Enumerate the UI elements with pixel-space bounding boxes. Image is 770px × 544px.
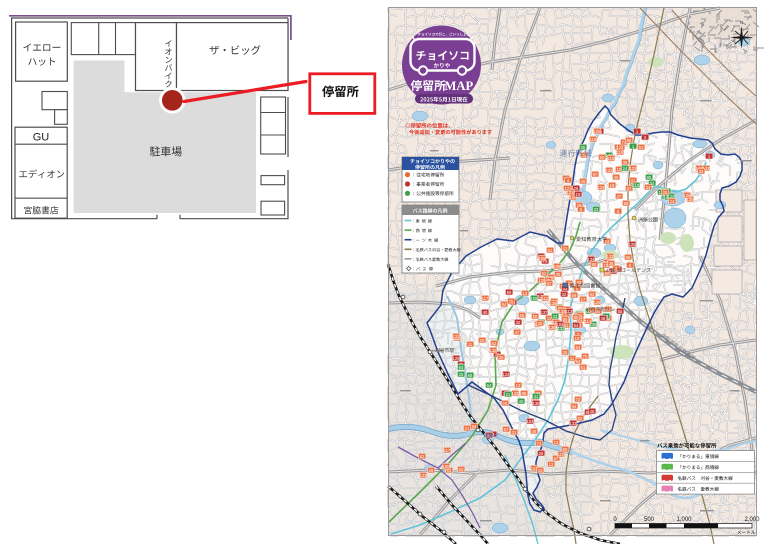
svg-text:40: 40 xyxy=(614,175,619,180)
svg-text:1,000: 1,000 xyxy=(676,517,692,523)
svg-text:47: 47 xyxy=(515,330,520,335)
svg-text:124: 124 xyxy=(503,372,511,377)
svg-text:136: 136 xyxy=(550,301,558,306)
svg-text:86: 86 xyxy=(592,262,597,267)
svg-text:40: 40 xyxy=(483,310,488,315)
svg-text:MAP: MAP xyxy=(445,79,474,93)
svg-text:27: 27 xyxy=(617,194,622,199)
svg-text:94: 94 xyxy=(502,302,507,307)
svg-text:69: 69 xyxy=(572,293,577,298)
svg-text:137: 137 xyxy=(541,310,549,315)
svg-text:23: 23 xyxy=(553,314,558,319)
svg-text:114: 114 xyxy=(585,319,592,324)
svg-text:19: 19 xyxy=(576,192,581,197)
svg-text:82: 82 xyxy=(590,292,595,297)
svg-text:64: 64 xyxy=(576,359,581,364)
svg-text:109: 109 xyxy=(539,256,547,261)
svg-text:63: 63 xyxy=(459,467,464,472)
svg-text:86: 86 xyxy=(627,138,632,143)
svg-text:21: 21 xyxy=(465,426,470,431)
svg-text:136: 136 xyxy=(549,325,557,330)
svg-text:84: 84 xyxy=(472,424,477,429)
svg-text:60: 60 xyxy=(600,155,605,160)
svg-text:99: 99 xyxy=(624,201,629,206)
svg-text:132: 132 xyxy=(512,391,520,396)
svg-text:28: 28 xyxy=(532,429,537,434)
svg-text:67: 67 xyxy=(547,281,552,286)
svg-text:80: 80 xyxy=(574,315,579,320)
svg-text:62: 62 xyxy=(492,341,497,346)
svg-text:25: 25 xyxy=(459,372,464,377)
svg-text:117: 117 xyxy=(444,448,451,453)
svg-text:35: 35 xyxy=(623,160,628,165)
svg-text:82: 82 xyxy=(420,454,425,459)
svg-text:24: 24 xyxy=(670,199,675,204)
svg-text:132: 132 xyxy=(607,254,615,259)
svg-text:32: 32 xyxy=(516,320,521,325)
svg-text:124: 124 xyxy=(598,185,606,190)
svg-text:106: 106 xyxy=(531,296,539,301)
svg-text:35: 35 xyxy=(538,321,543,326)
svg-text:20: 20 xyxy=(480,338,485,343)
svg-text:13: 13 xyxy=(554,440,559,445)
svg-text:46: 46 xyxy=(590,409,595,414)
svg-text:125: 125 xyxy=(594,300,602,305)
svg-text:64: 64 xyxy=(487,383,492,388)
svg-text:20: 20 xyxy=(563,350,568,355)
svg-text:40: 40 xyxy=(519,399,524,404)
svg-text:110: 110 xyxy=(558,452,565,457)
svg-text:93: 93 xyxy=(459,365,464,370)
svg-text:11: 11 xyxy=(547,316,552,321)
svg-text:70: 70 xyxy=(583,354,588,359)
svg-text:94: 94 xyxy=(572,404,577,409)
svg-text:116: 116 xyxy=(633,183,640,188)
svg-text:67: 67 xyxy=(627,186,632,191)
svg-text:26: 26 xyxy=(539,451,544,456)
svg-text:25: 25 xyxy=(663,190,668,195)
svg-text:20: 20 xyxy=(503,401,508,406)
svg-text:36: 36 xyxy=(556,272,561,277)
svg-text:123: 123 xyxy=(420,473,428,478)
svg-text:104: 104 xyxy=(527,419,535,424)
svg-text:21: 21 xyxy=(506,392,511,397)
svg-text:54: 54 xyxy=(574,323,579,328)
svg-text:115: 115 xyxy=(608,156,615,161)
svg-text:56: 56 xyxy=(520,313,525,318)
svg-text:112: 112 xyxy=(542,296,549,301)
svg-text:38: 38 xyxy=(609,261,614,266)
svg-text:500: 500 xyxy=(644,517,655,523)
svg-text:125: 125 xyxy=(629,242,637,247)
svg-text:31: 31 xyxy=(512,430,517,435)
svg-text:133: 133 xyxy=(630,166,638,171)
svg-text:80: 80 xyxy=(507,290,512,295)
svg-text:19: 19 xyxy=(575,336,580,341)
svg-text:68: 68 xyxy=(468,373,473,378)
svg-text:81: 81 xyxy=(548,248,553,253)
svg-text:98: 98 xyxy=(626,255,631,260)
svg-text:54: 54 xyxy=(576,345,581,350)
svg-text:75: 75 xyxy=(509,299,514,304)
svg-text:52: 52 xyxy=(542,271,547,276)
svg-text:138: 138 xyxy=(559,309,567,314)
svg-text:34: 34 xyxy=(646,185,651,190)
svg-text:85: 85 xyxy=(647,175,652,180)
svg-text:41: 41 xyxy=(631,178,636,183)
svg-text:32: 32 xyxy=(562,292,567,297)
svg-text:33: 33 xyxy=(699,169,704,174)
svg-text:GU: GU xyxy=(33,132,50,144)
svg-text:12: 12 xyxy=(565,186,570,191)
svg-text:55: 55 xyxy=(618,309,623,314)
svg-text:72: 72 xyxy=(576,397,581,402)
svg-text:129: 129 xyxy=(453,356,461,361)
svg-text:104: 104 xyxy=(557,322,565,327)
svg-text:97: 97 xyxy=(593,172,598,177)
svg-text:125: 125 xyxy=(594,129,602,134)
svg-text:22: 22 xyxy=(619,145,624,150)
svg-text:117: 117 xyxy=(482,296,489,301)
svg-text:50: 50 xyxy=(533,314,538,319)
svg-text:138: 138 xyxy=(533,401,541,406)
svg-text:12: 12 xyxy=(523,291,528,296)
svg-text:88: 88 xyxy=(522,391,527,396)
svg-text:11: 11 xyxy=(468,342,473,347)
svg-text:19: 19 xyxy=(610,183,615,188)
svg-text:132: 132 xyxy=(606,168,614,173)
svg-text:100: 100 xyxy=(443,464,451,469)
svg-text:24: 24 xyxy=(623,166,628,171)
svg-text:106: 106 xyxy=(684,193,692,198)
svg-text:87: 87 xyxy=(504,427,509,432)
svg-text:80: 80 xyxy=(563,447,568,452)
svg-text:11: 11 xyxy=(570,356,575,361)
svg-text:118: 118 xyxy=(617,150,624,155)
svg-text:26: 26 xyxy=(429,468,434,473)
svg-text:33: 33 xyxy=(594,207,599,212)
svg-text:17: 17 xyxy=(581,297,586,302)
svg-text:132: 132 xyxy=(490,348,498,353)
svg-text:44: 44 xyxy=(538,468,543,473)
svg-text:41: 41 xyxy=(563,246,568,251)
svg-text:82: 82 xyxy=(578,416,583,421)
svg-text:30: 30 xyxy=(499,355,504,360)
svg-text:48: 48 xyxy=(601,316,606,321)
svg-text:132: 132 xyxy=(453,334,461,339)
svg-text:119: 119 xyxy=(590,137,597,142)
svg-text:73: 73 xyxy=(537,441,542,446)
svg-text:35: 35 xyxy=(581,145,586,150)
svg-text:2,000: 2,000 xyxy=(744,517,760,523)
svg-text:26: 26 xyxy=(574,186,579,191)
svg-text:13: 13 xyxy=(516,383,521,388)
svg-text:113: 113 xyxy=(566,309,573,314)
svg-text:133: 133 xyxy=(570,421,578,426)
svg-text:12: 12 xyxy=(549,462,554,467)
svg-text:41: 41 xyxy=(534,394,539,399)
svg-text:61: 61 xyxy=(581,365,586,370)
svg-text:49: 49 xyxy=(581,179,586,184)
svg-text:109: 109 xyxy=(554,264,562,269)
svg-text:51: 51 xyxy=(639,145,644,150)
